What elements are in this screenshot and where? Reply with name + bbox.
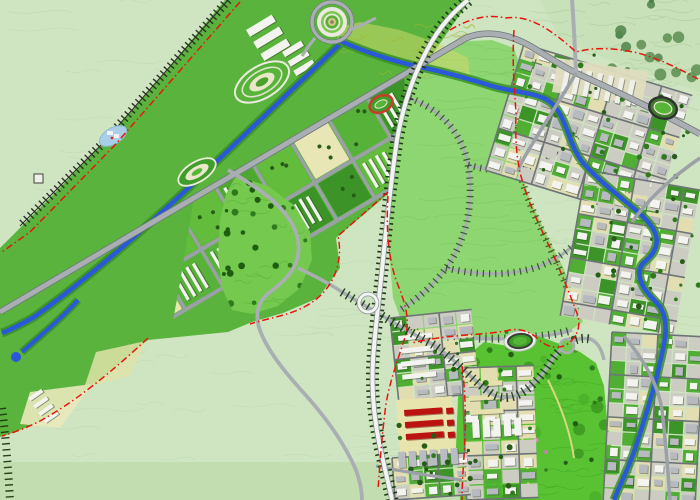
- city-cluster-southeast: [603, 332, 700, 500]
- red-row-housing: [404, 407, 445, 441]
- master-plan-map: [0, 0, 700, 500]
- landmark-tower: [34, 174, 43, 183]
- resort-flag: [111, 137, 114, 140]
- canal-pond: [11, 352, 21, 362]
- white-slab-row-east: [472, 417, 523, 439]
- resort-building-a: [107, 131, 113, 135]
- hill-flower-garden-b: [544, 450, 548, 454]
- plaza-center-monument: [330, 20, 334, 24]
- map-canvas: [0, 0, 700, 500]
- resort-building-b: [114, 134, 119, 138]
